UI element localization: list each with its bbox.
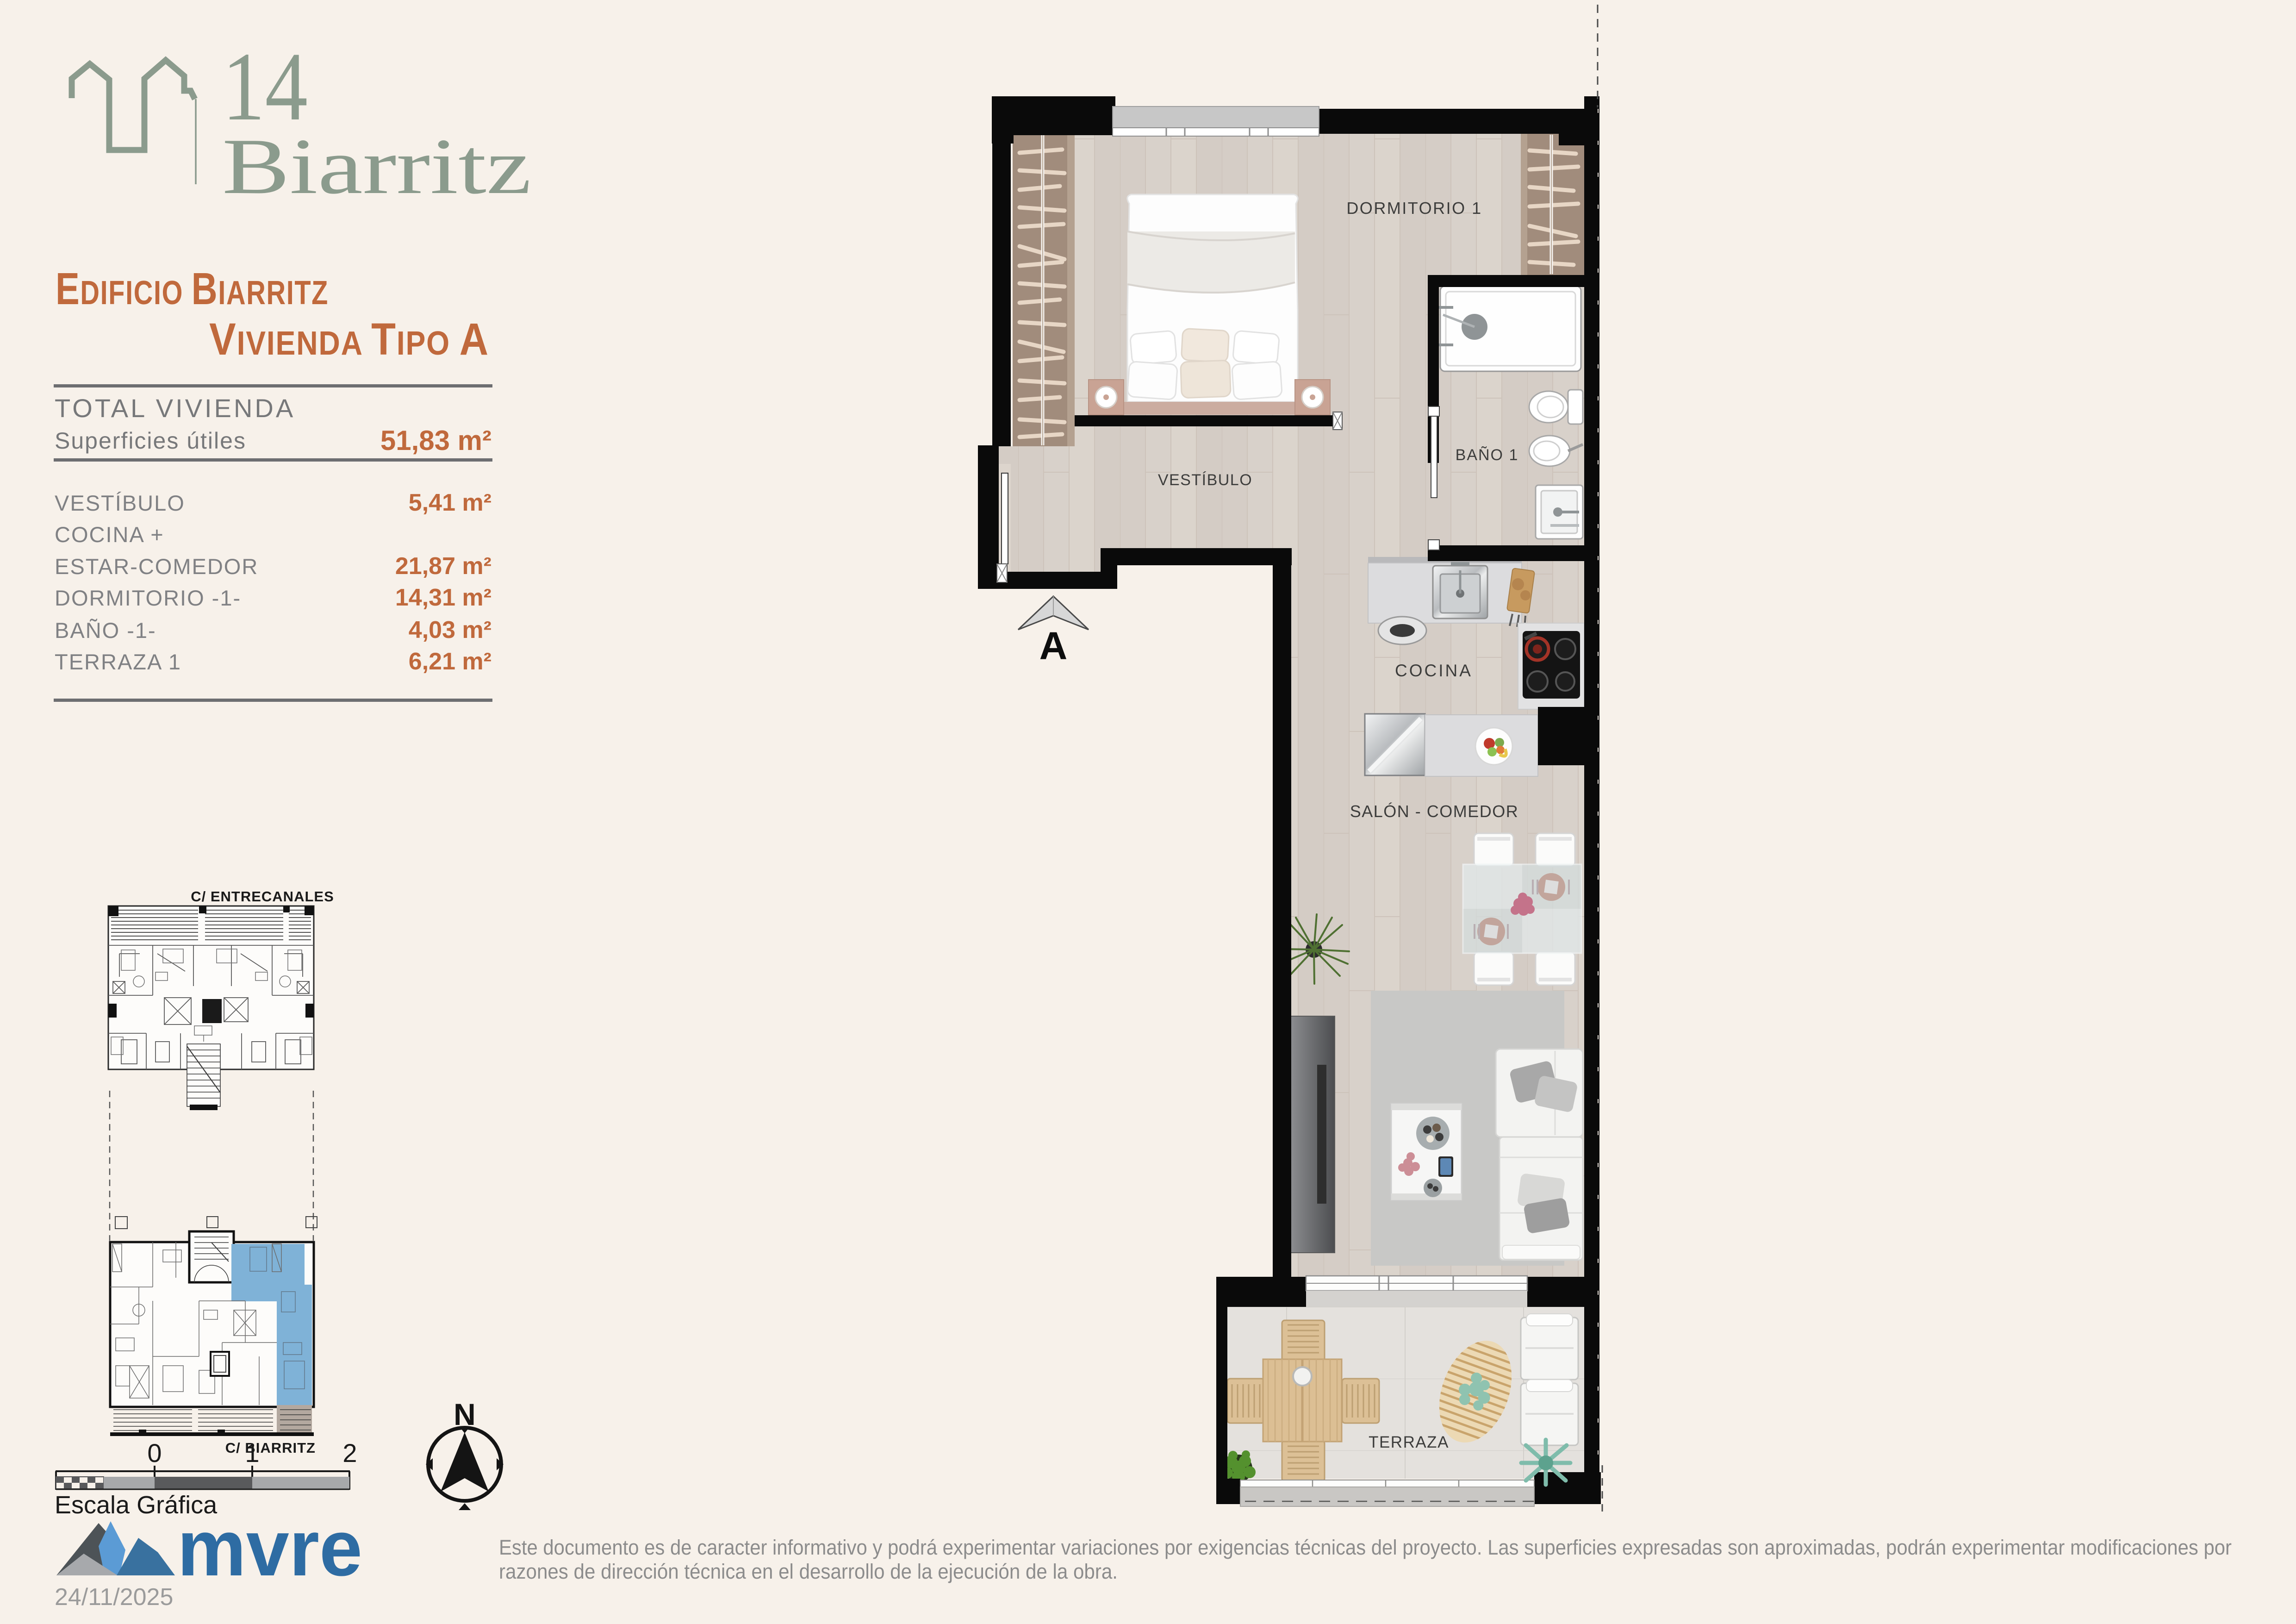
svg-text:N: N [454, 1397, 476, 1431]
svg-text:C/ BIARRITZ: C/ BIARRITZ [225, 1440, 316, 1456]
svg-text:4,03 m²: 4,03 m² [409, 617, 492, 643]
svg-text:21,87 m²: 21,87 m² [395, 553, 492, 580]
svg-text:Biarritz: Biarritz [222, 123, 531, 211]
svg-text:SALÓN - COMEDOR: SALÓN - COMEDOR [1350, 802, 1519, 821]
svg-text:6,21 m²: 6,21 m² [409, 648, 492, 675]
svg-text:mvre: mvre [177, 1504, 362, 1593]
svg-text:Este documento es de caracter: Este documento es de caracter informativ… [499, 1536, 2232, 1559]
svg-text:Superficies útiles: Superficies útiles [55, 428, 246, 454]
svg-text:C/ ENTRECANALES: C/ ENTRECANALES [191, 888, 334, 905]
svg-text:razones de dirección técnica e: razones de dirección técnica en el desar… [499, 1560, 1118, 1583]
svg-text:14,31 m²: 14,31 m² [395, 584, 492, 611]
svg-text:24/11/2025: 24/11/2025 [55, 1584, 173, 1611]
svg-text:ESTAR-COMEDOR: ESTAR-COMEDOR [55, 554, 258, 579]
svg-text:BAÑO -1-: BAÑO -1- [55, 618, 156, 643]
svg-text:5,41 m²: 5,41 m² [409, 489, 492, 516]
svg-text:TERRAZA: TERRAZA [1369, 1433, 1449, 1451]
svg-text:TERRAZA 1: TERRAZA 1 [55, 650, 181, 674]
svg-text:VESTÍBULO: VESTÍBULO [55, 491, 185, 515]
svg-text:51,83 m²: 51,83 m² [380, 425, 492, 456]
svg-text:COCINA +: COCINA + [55, 522, 164, 547]
svg-text:DORMITORIO -1-: DORMITORIO -1- [55, 586, 241, 610]
svg-text:VESTÍBULO: VESTÍBULO [1158, 471, 1252, 489]
svg-text:DORMITORIO 1: DORMITORIO 1 [1346, 199, 1482, 218]
svg-text:2: 2 [342, 1438, 357, 1468]
svg-text:0: 0 [147, 1438, 162, 1468]
svg-text:COCINA: COCINA [1395, 661, 1473, 680]
svg-text:TOTAL VIVIENDA: TOTAL VIVIENDA [55, 394, 295, 423]
svg-text:A: A [1039, 624, 1068, 668]
svg-text:BAÑO 1: BAÑO 1 [1456, 446, 1519, 464]
